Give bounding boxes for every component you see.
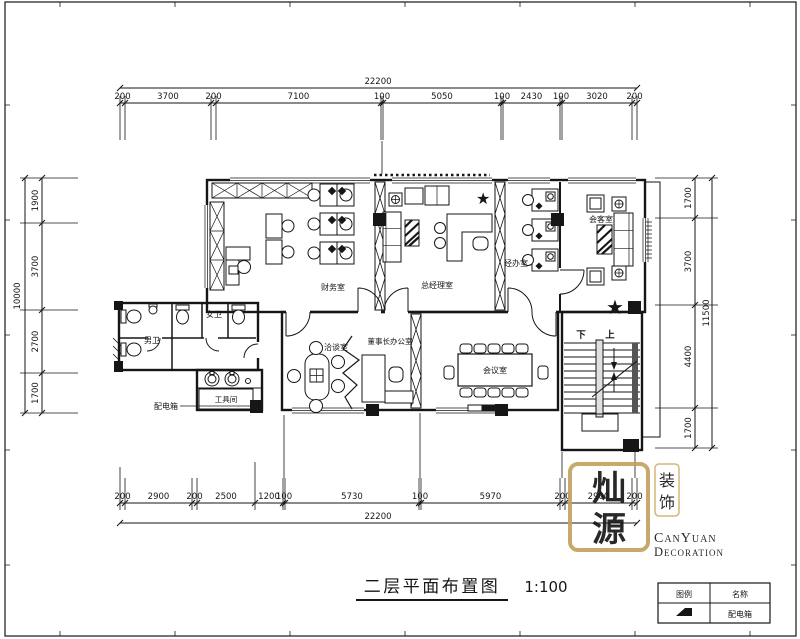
label-negotiation: 洽谈室: [324, 342, 348, 352]
label-women-toilet: 女卫: [206, 309, 222, 319]
logo-seal-char-1: 灿: [592, 469, 626, 509]
dim-label: 200: [205, 92, 221, 102]
dim-label: 10000: [13, 282, 23, 309]
staircase: [564, 340, 640, 431]
dim-label: 1900: [31, 190, 41, 212]
logo-stamp-char-2: 饰: [659, 493, 675, 512]
room-meeting-furniture: [444, 344, 548, 411]
floor-plan-drawing: 2220020037002007100100505010024301003020…: [0, 0, 800, 639]
room-finance-furniture: [210, 183, 354, 290]
dim-label: 100: [374, 92, 390, 102]
drawing-title: 二层平面布置图 1:100: [356, 577, 568, 600]
label-handling: 经办室: [504, 258, 528, 268]
dim-label: 4400: [684, 346, 694, 368]
label-distribution-box: 配电箱: [154, 401, 178, 411]
dim-label: 2430: [521, 92, 543, 102]
dim-label: 22200: [364, 77, 391, 87]
label-stair-down: 下: [576, 330, 586, 341]
dim-label: 7100: [288, 92, 310, 102]
room-reception-furniture: [587, 195, 633, 285]
distribution-box-symbol: [676, 608, 692, 616]
dim-label: 1700: [684, 187, 694, 209]
dim-label: 2700: [31, 331, 41, 353]
dim-label: 2500: [215, 492, 237, 502]
label-men-toilet: 男卫: [144, 336, 160, 345]
logo-name-en-2: Decoration: [654, 545, 724, 559]
dim-label: 3700: [684, 251, 694, 273]
legend-header-name: 名称: [732, 589, 748, 599]
legend-header-symbol: 图例: [676, 589, 692, 599]
dim-label: 5730: [341, 492, 363, 502]
dim-label: 200: [626, 92, 642, 102]
title-scale: 1:100: [524, 578, 567, 596]
dim-label: 2900: [148, 492, 170, 502]
dim-label: 3020: [586, 92, 608, 102]
floor-plan-page: 2220020037002007100100505010024301003020…: [0, 0, 800, 639]
dim-label: 200: [114, 92, 130, 102]
label-finance: 财务室: [321, 282, 345, 292]
dim-label: 3700: [31, 256, 41, 278]
dim-label: 100: [494, 92, 510, 102]
plant-star-icon: ★: [476, 189, 490, 208]
dim-label: 5970: [480, 492, 502, 502]
legend-table: 图例 名称 配电箱: [658, 583, 770, 623]
dim-label: 200: [114, 492, 130, 502]
label-meeting: 会议室: [483, 365, 507, 375]
legend-row-name: 配电箱: [728, 609, 752, 619]
label-tool-room: 工具间: [215, 395, 238, 404]
company-logo: 灿 源 装 饰 CanYuan Decoration: [570, 464, 724, 559]
label-reception: 会客室: [589, 214, 613, 224]
dim-label: 100: [276, 492, 292, 502]
dim-label: 100: [412, 492, 428, 502]
dim-label: 3700: [157, 92, 179, 102]
dim-label: 11500: [702, 299, 712, 326]
dim-label: 5050: [431, 92, 453, 102]
dim-label: 200: [626, 492, 642, 502]
label-stair-up: 上: [605, 329, 615, 341]
dim-label: 100: [553, 92, 569, 102]
logo-seal-char-2: 源: [592, 510, 626, 550]
label-gm: 总经理室: [421, 280, 453, 290]
plant-star-icon: ★: [606, 295, 624, 319]
title-text: 二层平面布置图: [364, 577, 501, 597]
room-chairman-furniture: [362, 355, 413, 403]
toilets: [121, 304, 251, 386]
dim-label: 1700: [31, 382, 41, 404]
logo-name-en-1: CanYuan: [654, 531, 717, 546]
label-chairman: 董事长办公室: [368, 336, 413, 346]
dim-label: 1700: [684, 417, 694, 439]
logo-stamp-char-1: 装: [659, 471, 675, 490]
dim-label: 200: [186, 492, 202, 502]
dim-label: 22200: [364, 512, 391, 522]
